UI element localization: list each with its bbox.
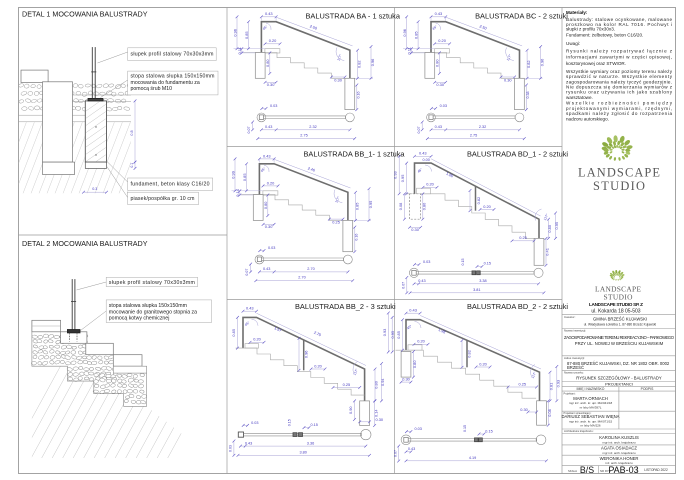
svg-text:rysunku oraz używania ich jako: rysunku oraz używania ich jako szablony xyxy=(566,90,673,95)
svg-text:0.30: 0.30 xyxy=(265,224,273,229)
svg-text:mgr inż. arch. krajobrazu: mgr inż. arch. krajobrazu xyxy=(602,451,635,455)
svg-text:ul. Kokarda 18 05-503: ul. Kokarda 18 05-503 xyxy=(591,308,640,314)
svg-text:0.30: 0.30 xyxy=(520,407,528,412)
svg-text:stopa stalowa słupka 150x150mm: stopa stalowa słupka 150x150mm xyxy=(131,74,215,80)
svg-text:0.30: 0.30 xyxy=(402,376,410,381)
svg-text:0.43: 0.43 xyxy=(409,308,417,313)
svg-text:0.15: 0.15 xyxy=(461,259,465,266)
svg-text:3.38: 3.38 xyxy=(479,279,486,283)
svg-text:0.07: 0.07 xyxy=(247,127,251,134)
svg-text:0.25: 0.25 xyxy=(519,235,527,240)
svg-text:GMINA BRZEŚĆ KUJAWSKI: GMINA BRZEŚĆ KUJAWSKI xyxy=(593,316,647,321)
svg-text:0.43: 0.43 xyxy=(245,441,252,445)
svg-text:0.15: 0.15 xyxy=(484,262,491,266)
svg-text:0.96: 0.96 xyxy=(304,351,309,359)
svg-text:Fundament: żelbetowy, beton C1: Fundament: żelbetowy, beton C16/20. xyxy=(566,32,643,37)
svg-text:3.36: 3.36 xyxy=(307,441,314,445)
svg-text:BALUSTRADA BA - 1 sztuka: BALUSTRADA BA - 1 sztuka xyxy=(306,12,401,21)
svg-text:0.80: 0.80 xyxy=(547,224,552,232)
svg-text:0.30: 0.30 xyxy=(436,82,444,87)
svg-text:RYSUNEK SZCZEGÓŁOWY - BALUSTRA: RYSUNEK SZCZEGÓŁOWY - BALUSTRADY xyxy=(576,375,662,380)
svg-text:0.43: 0.43 xyxy=(419,151,427,156)
svg-text:0.94: 0.94 xyxy=(380,378,385,386)
svg-text:0.95: 0.95 xyxy=(390,331,395,339)
svg-text:0.43: 0.43 xyxy=(408,447,415,451)
svg-text:BALUSTRADA BC - 2 sztuki: BALUSTRADA BC - 2 sztuki xyxy=(475,12,568,21)
svg-text:pomocą śrub M10: pomocą śrub M10 xyxy=(131,86,173,92)
svg-text:0.95: 0.95 xyxy=(554,222,559,230)
svg-text:0.82: 0.82 xyxy=(467,350,472,358)
svg-text:0.20: 0.20 xyxy=(253,337,261,342)
svg-text:0.00: 0.00 xyxy=(423,158,430,162)
svg-text:WERONIKA HONER: WERONIKA HONER xyxy=(600,456,639,461)
svg-text:0.95: 0.95 xyxy=(400,175,405,183)
svg-text:0.20: 0.20 xyxy=(479,361,487,366)
svg-text:0.85: 0.85 xyxy=(242,174,247,182)
svg-text:0.20: 0.20 xyxy=(483,204,491,209)
svg-text:0.25: 0.25 xyxy=(332,219,340,224)
svg-text:0.30: 0.30 xyxy=(504,77,512,82)
svg-text:Architektura krajobrazu:: Architektura krajobrazu: xyxy=(564,429,594,433)
svg-text:słupki z profilu 70x30x3.: słupki z profilu 70x30x3. xyxy=(566,27,615,32)
svg-text:PODPIS: PODPIS xyxy=(641,387,655,391)
svg-text:informacjami zawartymi w częśc: informacjami zawartymi w części opisowej… xyxy=(566,55,672,60)
svg-text:mocowania do fundamentu za: mocowania do fundamentu za xyxy=(131,80,200,86)
svg-text:0.03: 0.03 xyxy=(423,260,430,264)
svg-text:B/S: B/S xyxy=(580,465,594,475)
svg-text:nr Izby MA/226: nr Izby MA/226 xyxy=(580,424,601,428)
svg-text:piasek/pospółka gr. 10 cm: piasek/pospółka gr. 10 cm xyxy=(131,196,195,202)
svg-text:0.16: 0.16 xyxy=(356,92,360,99)
svg-text:0.20: 0.20 xyxy=(314,363,322,368)
svg-text:0.03: 0.03 xyxy=(268,246,275,250)
svg-text:0.20: 0.20 xyxy=(426,182,434,187)
svg-text:Nazwa rysunku:: Nazwa rysunku: xyxy=(564,370,584,374)
svg-text:0.85: 0.85 xyxy=(354,203,359,211)
svg-text:STUDIO: STUDIO xyxy=(604,293,634,302)
svg-text:0.96: 0.96 xyxy=(402,29,407,37)
svg-text:0.82: 0.82 xyxy=(526,60,531,68)
svg-text:0.43: 0.43 xyxy=(263,267,270,271)
svg-text:ul. Władysława Łokietka 1, 87-: ul. Władysława Łokietka 1, 87-880 Brześć… xyxy=(584,322,657,326)
svg-text:3.80: 3.80 xyxy=(300,451,307,455)
svg-text:Materiały:: Materiały: xyxy=(566,10,588,15)
svg-text:ZAGOSPODAROWANIE TERENU REKREA: ZAGOSPODAROWANIE TERENU REKREACYJNO – PA… xyxy=(564,335,675,340)
svg-text:0.38: 0.38 xyxy=(526,92,530,99)
svg-text:IMIĘ I NAZWISKO: IMIĘ I NAZWISKO xyxy=(577,387,605,391)
svg-text:0.14: 0.14 xyxy=(235,188,240,196)
svg-text:0.85: 0.85 xyxy=(414,31,419,39)
svg-text:0.25: 0.25 xyxy=(519,381,527,386)
svg-text:0.93: 0.93 xyxy=(393,171,398,179)
svg-text:0.80: 0.80 xyxy=(422,202,427,210)
svg-text:warsztatowe.: warsztatowe. xyxy=(566,95,593,100)
svg-text:BALUSTRADA BB_2 - 3 sztuki: BALUSTRADA BB_2 - 3 sztuki xyxy=(295,302,396,311)
svg-text:stopa stalowa słupka 150x150mm: stopa stalowa słupka 150x150mm xyxy=(109,303,187,309)
svg-text:Adres inwestycji:: Adres inwestycji: xyxy=(564,356,585,360)
svg-text:0.08: 0.08 xyxy=(547,409,552,417)
svg-text:0.20: 0.20 xyxy=(438,38,446,43)
svg-text:0.20: 0.20 xyxy=(269,38,277,43)
svg-text:słupek profil stalowy 70x30x3m: słupek profil stalowy 70x30x3mm xyxy=(109,280,195,286)
svg-text:0.80: 0.80 xyxy=(412,360,417,368)
svg-text:0.93: 0.93 xyxy=(556,380,561,388)
svg-text:0.43: 0.43 xyxy=(435,125,442,129)
svg-text:0.90: 0.90 xyxy=(348,406,353,414)
svg-text:0.14: 0.14 xyxy=(373,409,378,417)
svg-text:0.07: 0.07 xyxy=(245,269,249,276)
svg-text:KAROLINA KUSZLIS: KAROLINA KUSZLIS xyxy=(599,435,639,440)
svg-text:0.96: 0.96 xyxy=(539,59,544,67)
svg-text:0.30: 0.30 xyxy=(334,77,342,82)
svg-text:2.32: 2.32 xyxy=(479,125,486,129)
svg-text:3.81: 3.81 xyxy=(473,288,480,292)
svg-text:0.15: 0.15 xyxy=(311,423,318,427)
svg-text:0.93: 0.93 xyxy=(382,329,387,337)
svg-text:DETAL 2 MOCOWANIA BALUSTRADY: DETAL 2 MOCOWANIA BALUSTRADY xyxy=(22,239,148,248)
svg-text:0.80: 0.80 xyxy=(265,59,270,67)
svg-text:0.30: 0.30 xyxy=(411,227,419,232)
svg-text:0.85: 0.85 xyxy=(244,31,249,39)
svg-text:BALUSTRADA BD_1 - 2 sztuki: BALUSTRADA BD_1 - 2 sztuki xyxy=(467,149,568,158)
svg-text:słupek profil stalowy 70x30x3m: słupek profil stalowy 70x30x3mm xyxy=(131,51,214,57)
svg-text:pomocą kotwy chemicznej: pomocą kotwy chemicznej xyxy=(109,316,170,322)
svg-text:0.11: 0.11 xyxy=(237,47,242,54)
svg-text:0.07: 0.07 xyxy=(417,127,421,134)
svg-text:spadkami należy zgłosić do roz: spadkami należy zgłosić do rozpatrzenia xyxy=(566,111,672,116)
svg-text:PROJEKTANCI: PROJEKTANCI xyxy=(605,381,633,386)
svg-text:Inwestor:: Inwestor: xyxy=(564,315,576,319)
svg-text:kosztorysowej oraz STWIOR.: kosztorysowej oraz STWIOR. xyxy=(566,61,626,66)
svg-text:sprawdzić w naturze. Wszystkie: sprawdzić w naturze. Wszystkie elementy xyxy=(566,74,673,79)
svg-text:0.30: 0.30 xyxy=(267,82,275,87)
svg-text:2.70: 2.70 xyxy=(298,276,305,280)
svg-text:mgr inż. arch. krajobrazu: mgr inż. arch. krajobrazu xyxy=(602,440,635,444)
svg-text:0.43: 0.43 xyxy=(263,153,271,158)
svg-text:0.15: 0.15 xyxy=(287,419,291,426)
svg-text:0.15: 0.15 xyxy=(463,425,467,432)
svg-text:0.82: 0.82 xyxy=(356,60,361,68)
svg-text:0.43: 0.43 xyxy=(435,11,443,16)
svg-text:mocowanie do granitowego stopn: mocowanie do granitowego stopnia za xyxy=(109,309,197,315)
svg-text:0.3: 0.3 xyxy=(92,187,97,191)
svg-text:MARTA ORNIACH: MARTA ORNIACH xyxy=(573,396,608,401)
svg-text:LANDSCAPE STUDIO SP. Z: LANDSCAPE STUDIO SP. Z xyxy=(589,302,643,307)
svg-text:0.03: 0.03 xyxy=(270,104,277,108)
svg-text:0.43: 0.43 xyxy=(246,306,254,311)
svg-text:2.75: 2.75 xyxy=(470,134,477,138)
svg-text:0.95: 0.95 xyxy=(368,201,373,209)
svg-text:4.19: 4.19 xyxy=(469,456,476,460)
svg-text:0.81: 0.81 xyxy=(549,383,554,391)
svg-text:0.99: 0.99 xyxy=(230,171,235,179)
svg-text:0.43: 0.43 xyxy=(265,11,273,16)
svg-text:0.03: 0.03 xyxy=(440,104,447,108)
svg-text:Rysunki należy rozpatrywać łąc: Rysunki należy rozpatrywać łącznie z xyxy=(566,48,673,53)
svg-text:0.03: 0.03 xyxy=(229,445,233,452)
svg-text:BALUSTRADA BD_2 - 2 sztuki: BALUSTRADA BD_2 - 2 sztuki xyxy=(467,302,568,311)
svg-text:0.80: 0.80 xyxy=(263,201,268,209)
svg-text:0.03: 0.03 xyxy=(415,427,422,431)
svg-text:0.15: 0.15 xyxy=(485,429,492,433)
svg-text:0.20: 0.20 xyxy=(267,180,275,185)
svg-text:0.08: 0.08 xyxy=(398,203,403,211)
svg-text:0.80: 0.80 xyxy=(435,59,440,67)
svg-text:0.20: 0.20 xyxy=(417,339,425,344)
svg-text:SKALA: SKALA xyxy=(568,469,577,473)
svg-text:PRZY UL. NOWEJ W BRZEŚCIU KUJA: PRZY UL. NOWEJ W BRZEŚCIU KUJAWSKIM xyxy=(575,341,664,346)
svg-text:Uwagi:: Uwagi: xyxy=(566,41,580,46)
svg-text:Nazwa inwestycji:: Nazwa inwestycji: xyxy=(564,328,586,332)
svg-text:0.80: 0.80 xyxy=(374,380,379,388)
svg-text:0.30: 0.30 xyxy=(376,417,384,422)
svg-text:fundament, beton klasy C16/20: fundament, beton klasy C16/20 xyxy=(131,182,210,188)
svg-text:0.07: 0.07 xyxy=(393,450,397,457)
svg-text:2.75: 2.75 xyxy=(300,134,307,138)
svg-text:BALUSTRADA BB_1- 1 sztuka: BALUSTRADA BB_1- 1 sztuka xyxy=(304,149,406,158)
svg-text:0.41: 0.41 xyxy=(545,248,550,256)
svg-text:nadzoru autorskiego.: nadzoru autorskiego. xyxy=(566,116,609,121)
svg-text:0.43: 0.43 xyxy=(265,125,272,129)
svg-text:0.8: 0.8 xyxy=(130,130,134,135)
svg-text:Wszystkie wymiary oraz poziomy: Wszystkie wymiary oraz poziomy terenu na… xyxy=(566,69,673,74)
svg-text:LISTOPAD 2022: LISTOPAD 2022 xyxy=(644,468,668,472)
svg-text:0.25: 0.25 xyxy=(343,382,351,387)
svg-text:AGATA OSIADACZ: AGATA OSIADACZ xyxy=(601,446,637,451)
svg-text:0.96: 0.96 xyxy=(232,29,237,37)
svg-text:LANDSCAPE: LANDSCAPE xyxy=(578,166,660,180)
svg-text:0.43: 0.43 xyxy=(418,279,425,283)
svg-text:2.32: 2.32 xyxy=(309,125,316,129)
svg-text:0.82: 0.82 xyxy=(476,197,481,205)
svg-text:0.85: 0.85 xyxy=(231,329,236,337)
svg-text:PAB-03: PAB-03 xyxy=(608,465,638,475)
svg-text:0.16: 0.16 xyxy=(354,234,358,241)
svg-text:0.03: 0.03 xyxy=(251,421,258,425)
svg-text:2.70: 2.70 xyxy=(307,267,314,271)
svg-text:0.07: 0.07 xyxy=(401,282,405,289)
svg-text:DETAL 1 MOCOWANIA BALUSTRADY: DETAL 1 MOCOWANIA BALUSTRADY xyxy=(22,10,148,19)
svg-text:0.1: 0.1 xyxy=(130,163,134,168)
svg-text:0.11: 0.11 xyxy=(407,47,412,54)
svg-text:0.85: 0.85 xyxy=(396,331,401,339)
svg-text:STUDIO: STUDIO xyxy=(593,179,645,193)
svg-text:0.96: 0.96 xyxy=(370,59,375,67)
svg-text:nr Izby MA/397L: nr Izby MA/397L xyxy=(580,405,602,409)
